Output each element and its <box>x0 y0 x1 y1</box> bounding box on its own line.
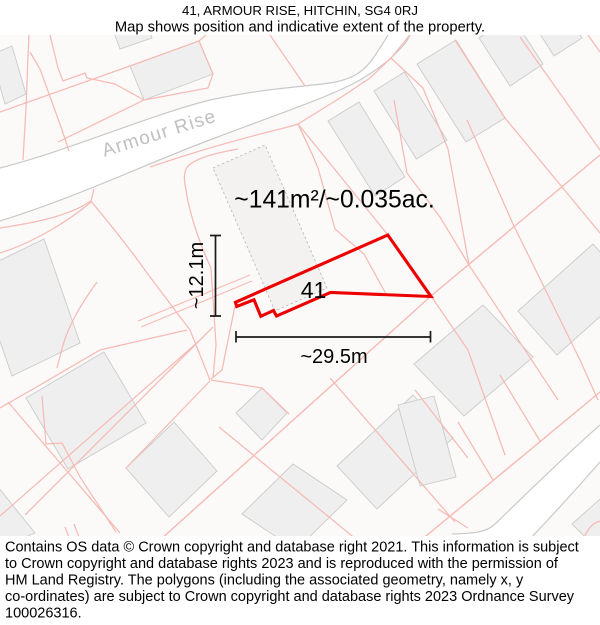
svg-text:41, ARMOUR RISE, HITCHIN, SG4: 41, ARMOUR RISE, HITCHIN, SG4 0RJ <box>182 3 418 18</box>
svg-text:Contains OS data © Crown copyr: Contains OS data © Crown copyright and d… <box>5 539 579 555</box>
svg-text:to Crown copyright and databas: to Crown copyright and database rights 2… <box>5 556 559 572</box>
svg-text:~12.1m: ~12.1m <box>186 242 208 309</box>
svg-text:co-ordinates) are subject to C: co-ordinates) are subject to Crown copyr… <box>5 589 575 605</box>
svg-text:41: 41 <box>301 277 327 303</box>
svg-text:~29.5m: ~29.5m <box>300 346 367 368</box>
svg-text:HM Land Registry. The polygons: HM Land Registry. The polygons (includin… <box>5 573 524 589</box>
svg-text:~141m²/~0.035ac.: ~141m²/~0.035ac. <box>234 187 434 214</box>
svg-text:100026316.: 100026316. <box>5 606 82 622</box>
svg-text:Map shows position and indicat: Map shows position and indicative extent… <box>115 20 485 36</box>
